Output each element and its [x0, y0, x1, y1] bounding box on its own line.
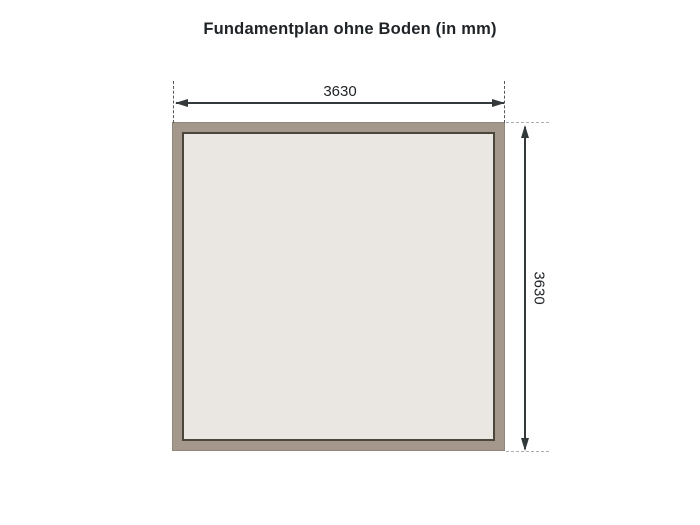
diagram-title: Fundamentplan ohne Boden (in mm): [0, 20, 700, 39]
arrowhead-right-icon: [492, 99, 505, 107]
foundation-plan-canvas: Fundamentplan ohne Boden (in mm) 3630 36…: [0, 0, 700, 525]
height-dimension-label: 3630: [531, 271, 548, 304]
width-dimension-line: [176, 102, 504, 104]
arrowhead-left-icon: [175, 99, 188, 107]
arrowhead-up-icon: [521, 125, 529, 138]
extension-line-top-left: [173, 81, 174, 123]
extension-line-right-bottom: [506, 451, 549, 452]
foundation-frame: [172, 122, 505, 451]
extension-line-right-top: [506, 122, 549, 123]
width-dimension-label: 3630: [290, 83, 390, 100]
height-dimension-line: [524, 127, 526, 449]
foundation-inner-area: [182, 132, 495, 441]
arrowhead-down-icon: [521, 438, 529, 451]
